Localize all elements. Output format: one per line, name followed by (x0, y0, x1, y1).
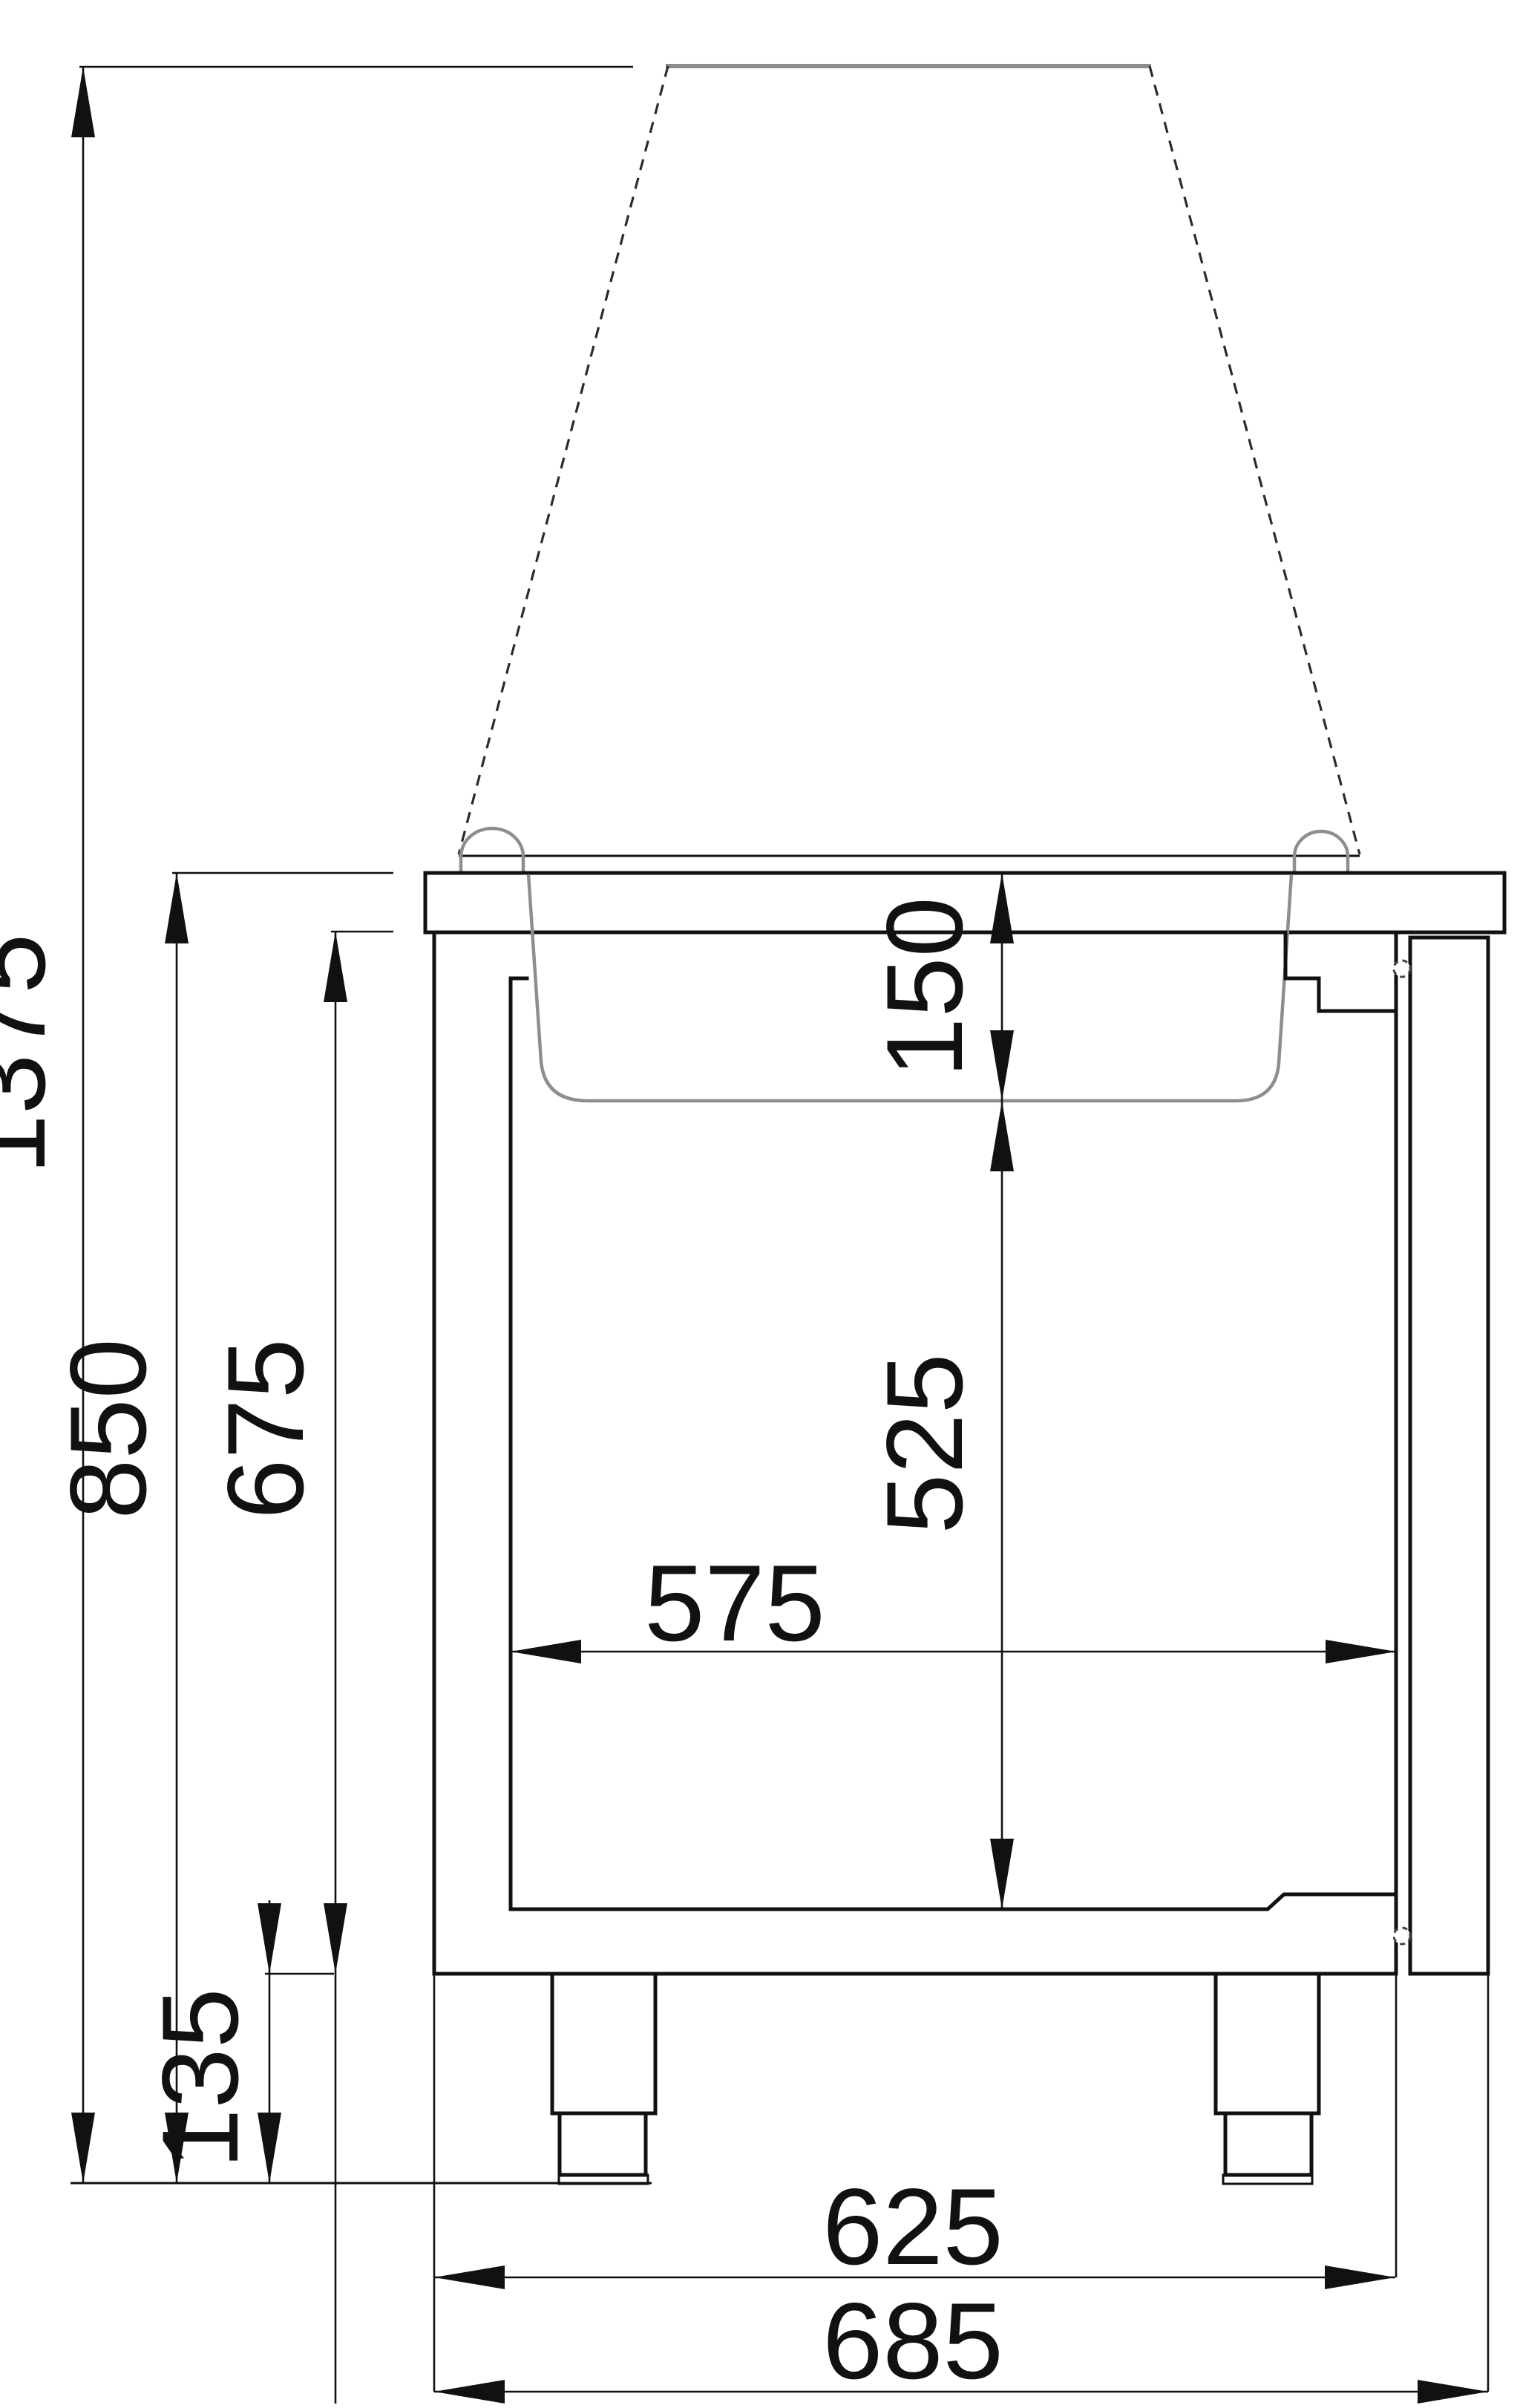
dim-label-850: 850 (47, 1338, 168, 1519)
dim-575: 575 (511, 1542, 1396, 1663)
dim-label-685: 685 (822, 2280, 1003, 2401)
dim-label-525: 525 (864, 1353, 985, 1534)
right-leg-body (1216, 1974, 1319, 2113)
door-panel (1410, 938, 1488, 1974)
door-hinge-bottom (1394, 1928, 1410, 1944)
right-leg (1216, 1974, 1319, 2184)
canopy-right-edge (1150, 66, 1360, 854)
glass-canopy (459, 66, 1360, 854)
left-hinge-dome (461, 828, 523, 857)
cad-drawing: 1375 850 675 135 150 525 5 (0, 0, 1520, 2408)
dim-150: 150 (864, 873, 1014, 1101)
dim-label-575: 575 (644, 1542, 825, 1663)
dim-label-135: 135 (140, 1988, 261, 2169)
door (1394, 938, 1488, 1974)
dim-525: 525 (864, 1101, 1014, 1909)
door-hinge-top (1394, 961, 1410, 977)
right-hinge-dome (1294, 831, 1348, 857)
dim-135: 135 (140, 1900, 281, 2183)
dim-label-675: 675 (205, 1338, 326, 1519)
dim-label-150: 150 (864, 897, 985, 1078)
right-leg-foot (1225, 2113, 1311, 2175)
left-leg (552, 1974, 655, 2184)
pan-well-rim (459, 828, 1360, 873)
extension-lines (79, 67, 1488, 2392)
dim-label-625: 625 (822, 2166, 1003, 2287)
interior-ceiling-step (1285, 932, 1396, 1011)
dim-685: 685 (434, 2280, 1488, 2404)
dim-label-1375: 1375 (0, 934, 68, 1175)
left-leg-body (552, 1974, 655, 2113)
dim-850: 850 (47, 873, 189, 2183)
left-leg-foot (560, 2113, 646, 2175)
dim-1375: 1375 (0, 67, 95, 2183)
canopy-left-edge (459, 66, 668, 854)
